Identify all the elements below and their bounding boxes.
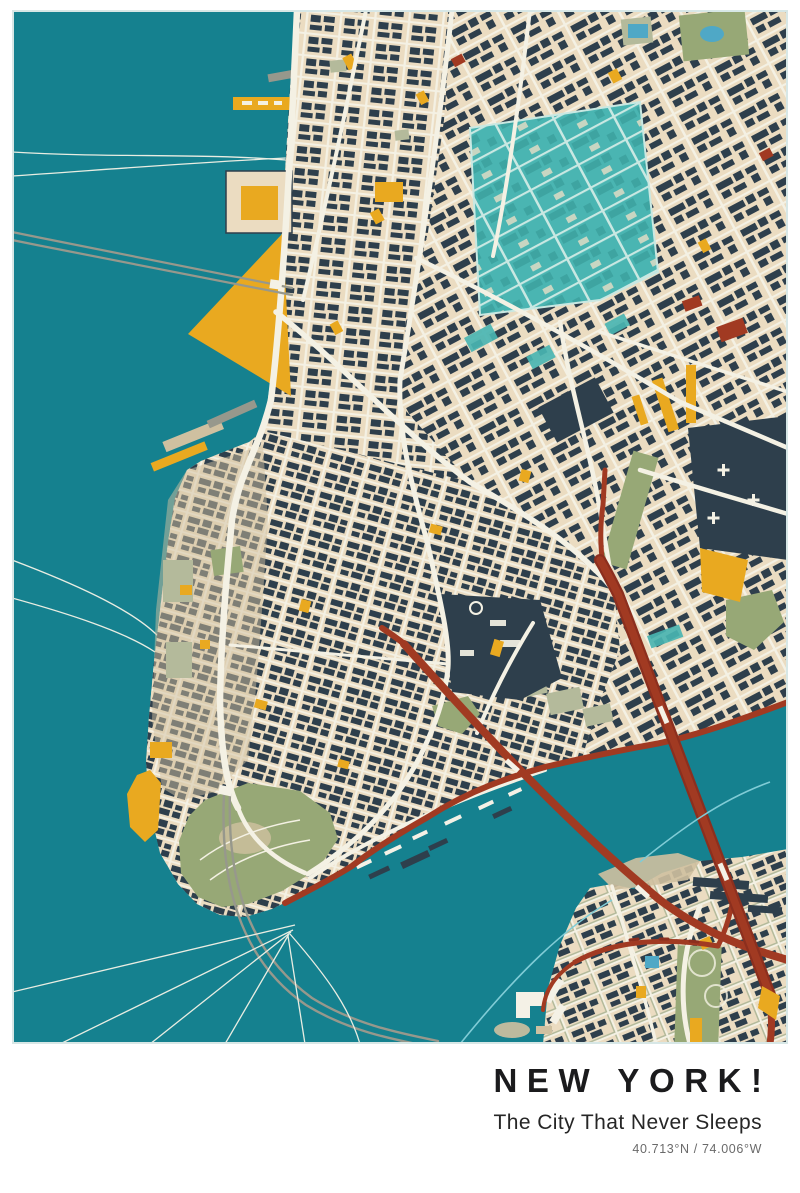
poster-footer: NEW YORK! The City That Never Sleeps 40.…: [0, 1062, 762, 1157]
pond: [628, 24, 648, 38]
park-pond: [700, 26, 724, 42]
poster-subtitle: The City That Never Sleeps: [0, 1111, 762, 1134]
poster-title: NEW YORK!: [0, 1062, 772, 1100]
map-frame: [12, 10, 788, 1044]
bpc-park-1: [163, 560, 193, 602]
map-artwork: [12, 10, 788, 1044]
map-poster: NEW YORK! The City That Never Sleeps 40.…: [0, 0, 800, 1193]
village-park-2: [395, 129, 410, 140]
bpc-park-2: [166, 642, 192, 678]
poster-coordinates: 40.713°N / 74.006°W: [0, 1143, 762, 1157]
brooklyn-pond: [645, 956, 659, 968]
pier-40-inner: [241, 186, 278, 220]
